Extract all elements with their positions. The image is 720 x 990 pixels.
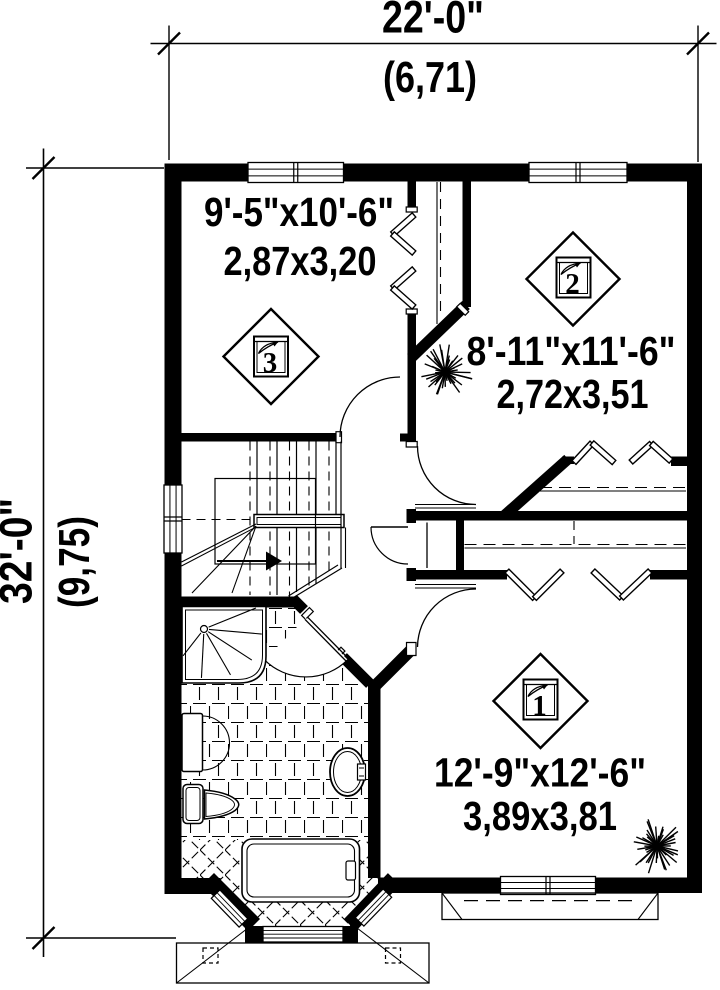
svg-text:1: 1 (532, 690, 547, 722)
svg-text:(9,75): (9,75) (50, 516, 99, 608)
svg-text:2,87x3,20: 2,87x3,20 (224, 238, 377, 284)
svg-text:12'-9"x12'-6": 12'-9"x12'-6" (434, 750, 646, 796)
svg-text:9'-5"x10'-6": 9'-5"x10'-6" (204, 189, 394, 235)
svg-text:2: 2 (565, 268, 580, 300)
svg-text:32'-0": 32'-0" (0, 498, 42, 604)
svg-text:2,72x3,51: 2,72x3,51 (497, 371, 649, 417)
svg-text:22'-0": 22'-0" (382, 0, 484, 43)
svg-text:8'-11"x11'-6": 8'-11"x11'-6" (467, 328, 676, 374)
svg-text:3: 3 (263, 347, 278, 379)
svg-text:(6,71): (6,71) (383, 53, 477, 102)
svg-text:3,89x3,81: 3,89x3,81 (463, 793, 617, 839)
